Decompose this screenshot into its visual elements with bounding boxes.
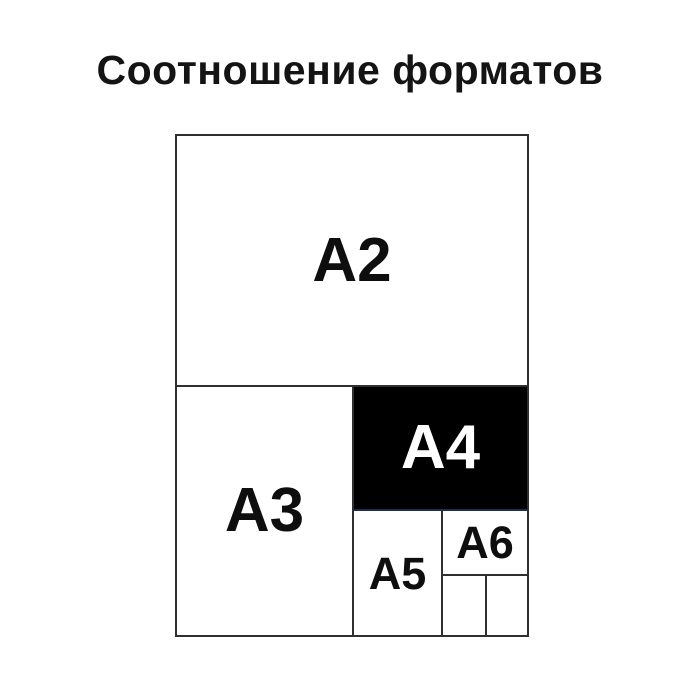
format-cell-a2: A2 — [177, 136, 527, 387]
format-label-a2: A2 — [312, 230, 391, 292]
format-cell-a4: A4 — [354, 387, 527, 511]
paper-format-diagram: A2 A3 A4 A5 A6 — [175, 134, 529, 637]
format-cell-sub-left — [443, 576, 487, 635]
format-label-a6: A6 — [456, 520, 514, 565]
format-cell-sub-right — [487, 576, 527, 635]
format-label-a4: A4 — [401, 417, 480, 479]
format-label-a3: A3 — [225, 480, 304, 542]
page: Соотношение форматов A2 A3 A4 A5 A6 — [0, 0, 700, 700]
format-cell-a5: A5 — [354, 511, 443, 635]
format-cell-a3: A3 — [177, 387, 354, 635]
format-cell-a6: A6 — [443, 511, 527, 576]
page-title: Соотношение форматов — [0, 47, 700, 94]
format-label-a5: A5 — [369, 551, 427, 596]
